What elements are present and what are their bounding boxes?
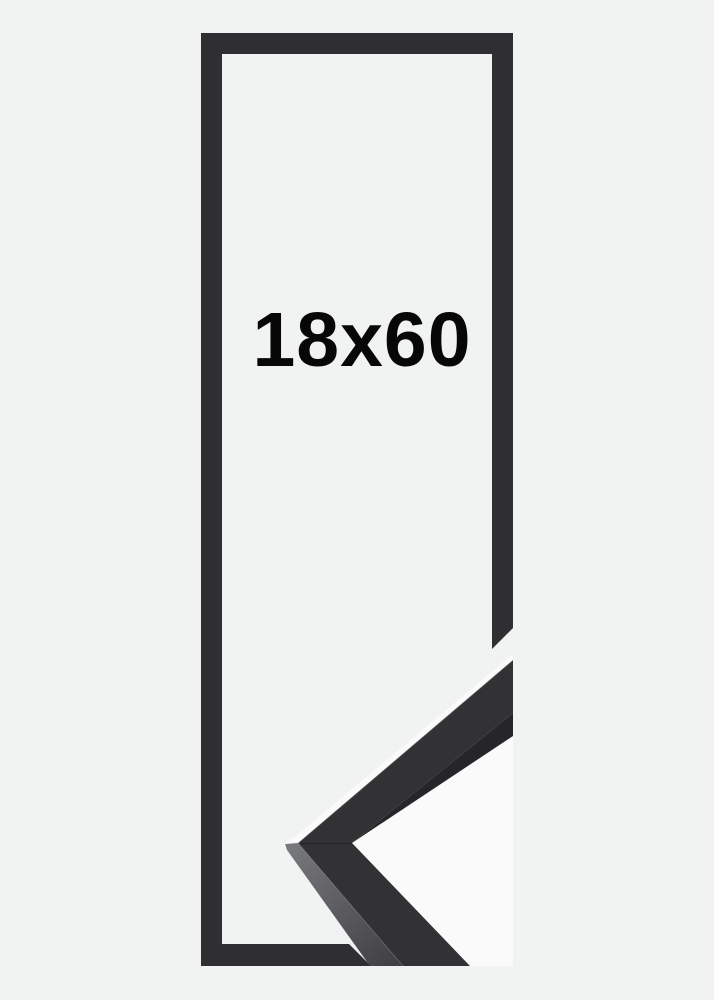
frame-product-image: 18x60 [0,0,714,1000]
frame-illustration [0,0,714,1000]
size-label: 18x60 [5,283,714,397]
